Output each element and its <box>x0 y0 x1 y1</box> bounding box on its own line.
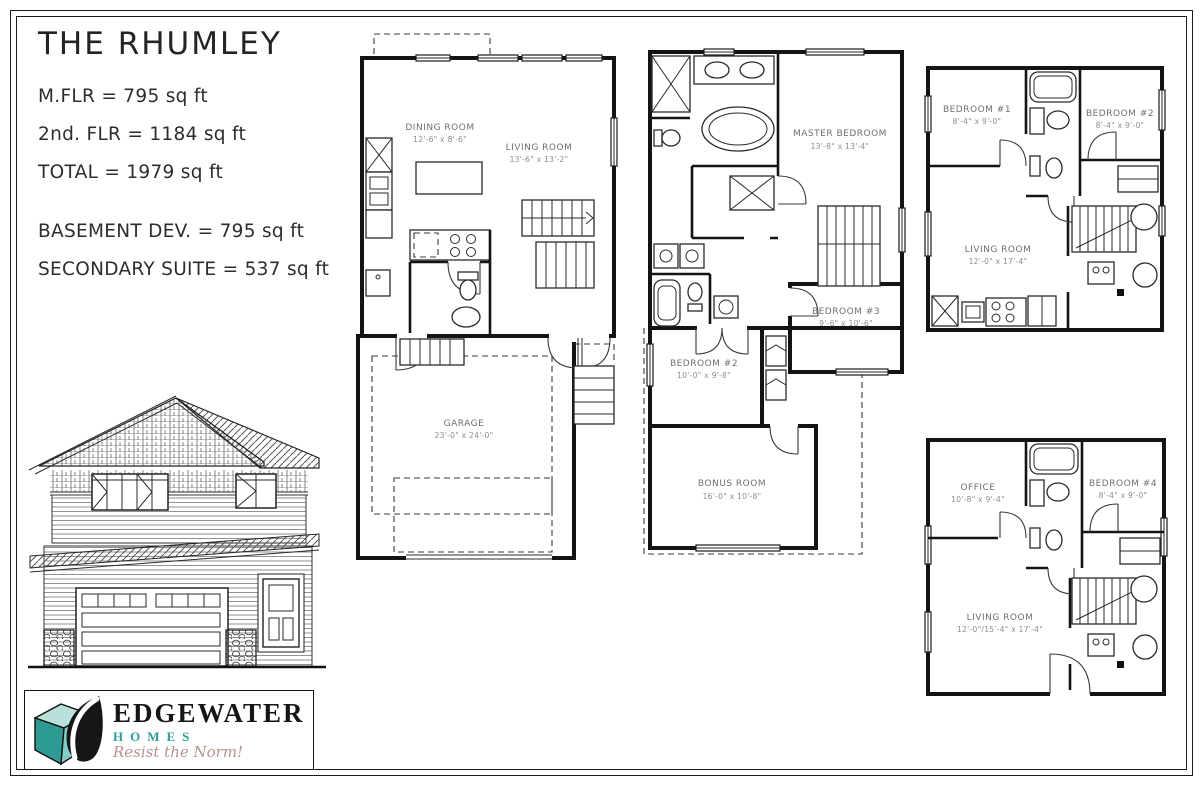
room-dims: 12'-0" x 17'-4" <box>969 257 1028 266</box>
toilet <box>1046 158 1062 178</box>
main-bath <box>654 274 738 328</box>
kitchen-island <box>416 162 482 194</box>
counter <box>410 230 490 260</box>
room-label: LIVING ROOM <box>506 143 573 153</box>
dryer <box>680 244 704 268</box>
spec-main-floor-area: M.FLR = 795 sq ft <box>38 86 329 107</box>
logo-text: EDGEWATER HOMES Resist the Norm! <box>113 700 305 760</box>
spec-secondary-suite-area: SECONDARY SUITE = 537 sq ft <box>38 259 329 280</box>
stove <box>986 298 1026 326</box>
linen-closets <box>766 336 786 400</box>
room-dims: 8'-4" x 9'-0" <box>953 117 1002 126</box>
side-stairs <box>574 366 614 424</box>
room-label: LIVING ROOM <box>965 245 1032 255</box>
furnace <box>1088 262 1114 284</box>
room-label: BEDROOM #2 <box>670 359 738 369</box>
page-title: THE RHUMLEY <box>38 26 329 62</box>
toilet <box>688 283 702 301</box>
room-dims: 13'-8" x 13'-4" <box>811 142 870 151</box>
room-label: DINING ROOM <box>405 123 474 133</box>
water-heater <box>1131 576 1157 602</box>
room-label: BEDROOM #1 <box>943 105 1011 115</box>
stone-pillar <box>44 630 74 666</box>
spec-total-area: TOTAL = 1979 sq ft <box>38 162 329 183</box>
laundry-sink <box>366 270 390 296</box>
bathroom <box>1030 72 1076 178</box>
room-label: BEDROOM #3 <box>812 307 880 317</box>
room-label: OFFICE <box>960 483 995 493</box>
basement-suite-plan: BEDROOM #1 8'-4" x 9'-0" BEDROOM #2 8'-4… <box>920 56 1170 341</box>
room-label: BONUS ROOM <box>698 479 766 489</box>
vanity <box>1030 108 1044 134</box>
master-bedroom-walls <box>778 52 806 204</box>
room-dims: 9'-6" x 10'-6" <box>819 319 873 328</box>
garage-door <box>76 588 228 666</box>
room-dims: 10'-8" x 9'-4" <box>951 495 1005 504</box>
toilet-tank <box>458 272 478 280</box>
logo-brand: EDGEWATER <box>113 700 305 727</box>
room-label: GARAGE <box>444 419 485 429</box>
vanity <box>1030 480 1044 506</box>
stairs-mechanical <box>1072 538 1160 668</box>
room-label: MASTER BEDROOM <box>793 129 887 139</box>
main-floor-plan: DINING ROOM 12'-6" x 8'-6" LIVING ROOM 1… <box>352 26 624 564</box>
basin <box>452 307 480 327</box>
sink <box>1047 483 1069 501</box>
title-block: THE RHUMLEY M.FLR = 795 sq ft 2nd. FLR =… <box>38 26 329 297</box>
garage-interior <box>372 339 614 562</box>
stairs-mechanical <box>1072 166 1158 296</box>
room-label: BEDROOM #4 <box>1089 479 1157 489</box>
room-dims: 16'-0" x 10'-8" <box>703 492 762 501</box>
pantry <box>366 210 392 238</box>
room-dims: 8'-4" x 9'-0" <box>1099 491 1148 500</box>
toilet <box>662 130 680 146</box>
logo-word: HOMES <box>113 730 305 743</box>
room-dims: 10'-0" x 9'-8" <box>677 371 731 380</box>
stone-pillar <box>226 630 256 666</box>
stairs <box>522 200 594 288</box>
front-door <box>258 574 304 652</box>
walk-in-closet <box>692 166 778 238</box>
room-dims: 12'-0"/15'-4" x 17'-4" <box>957 625 1043 634</box>
toilet <box>460 280 476 300</box>
soaker-tub <box>702 107 774 151</box>
vanity <box>714 296 738 318</box>
laundry <box>650 244 710 274</box>
stairs <box>818 206 880 286</box>
washer <box>654 244 678 268</box>
water-heater <box>1131 204 1157 230</box>
logo-tagline: Resist the Norm! <box>113 745 305 760</box>
plan-sheet: THE RHUMLEY M.FLR = 795 sq ft 2nd. FLR =… <box>0 0 1203 786</box>
second-floor-plan: MASTER BEDROOM 13'-8" x 13'-4" BEDROOM #… <box>640 26 912 561</box>
logo: EDGEWATER HOMES Resist the Norm! <box>24 690 314 770</box>
spec-basement-dev-area: BASEMENT DEV. = 795 sq ft <box>38 221 329 242</box>
sink <box>1047 111 1069 129</box>
basement-dev-plan: OFFICE 10'-8" x 9'-4" BEDROOM #4 8'-4" x… <box>920 430 1172 702</box>
toilet <box>1046 530 1062 550</box>
room-dims: 13'-6" x 13'-2" <box>510 155 569 164</box>
garage-wall <box>358 336 574 558</box>
room-label: LIVING ROOM <box>967 613 1034 623</box>
room-dims: 12'-6" x 8'-6" <box>413 135 467 144</box>
front-elevation <box>24 386 334 686</box>
ensuite <box>652 56 774 151</box>
spec-second-floor-area: 2nd. FLR = 1184 sq ft <box>38 124 329 145</box>
kitchen <box>366 138 490 260</box>
furnace <box>1088 634 1114 656</box>
windows <box>647 49 905 551</box>
exterior-wall <box>362 58 614 336</box>
room-dims: 23'-0" x 24'-0" <box>435 431 494 440</box>
bathroom <box>1030 444 1078 550</box>
room-label: BEDROOM #2 <box>1086 109 1154 119</box>
edgewater-logo-icon <box>31 694 107 766</box>
room-dims: 8'-4" x 9'-0" <box>1096 121 1145 130</box>
kitchen <box>932 296 1056 326</box>
